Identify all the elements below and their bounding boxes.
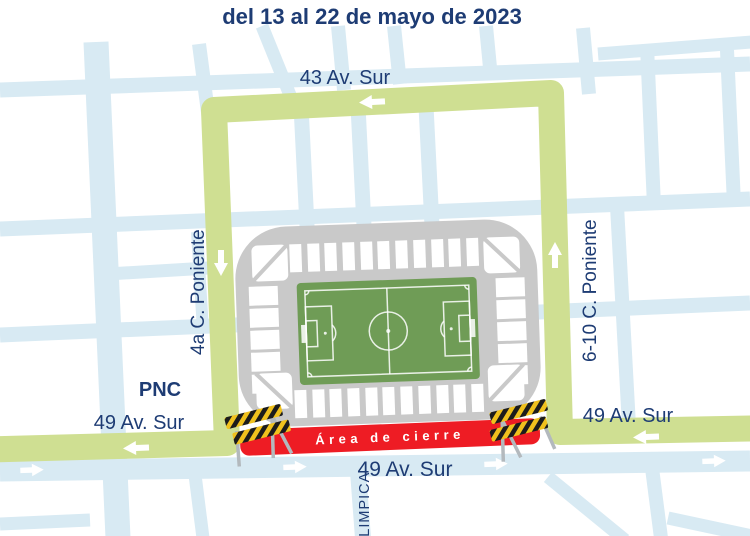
street <box>647 46 654 206</box>
street <box>727 50 734 204</box>
page-title: del 13 al 22 de mayo de 2023 <box>222 4 522 29</box>
street <box>394 26 400 84</box>
street <box>548 477 625 536</box>
label-4a-c-poniente: 4a C. Poniente <box>188 229 209 355</box>
road-closure-map: Área de cierre del 13 al 22 de mayo de 2… <box>0 0 750 536</box>
street <box>652 468 661 536</box>
label-olimpica: OLIMPICA <box>357 472 373 536</box>
street <box>262 26 292 100</box>
street <box>358 106 364 226</box>
label-49-av-sur-left: 49 Av. Sur <box>94 412 185 434</box>
stadium <box>234 218 543 428</box>
soccer-field <box>297 277 480 385</box>
street <box>486 26 491 78</box>
street <box>668 518 750 536</box>
street <box>617 206 629 426</box>
street <box>0 520 90 524</box>
label-pnc: PNC <box>139 379 181 401</box>
street <box>301 106 307 226</box>
street <box>426 106 432 226</box>
street <box>583 28 589 94</box>
label-43-av-sur: 43 Av. Sur <box>300 67 391 89</box>
label-6-10-c-poniente: 6-10 C. Poniente <box>580 219 601 362</box>
label-49-av-sur-right: 49 Av. Sur <box>583 405 674 427</box>
